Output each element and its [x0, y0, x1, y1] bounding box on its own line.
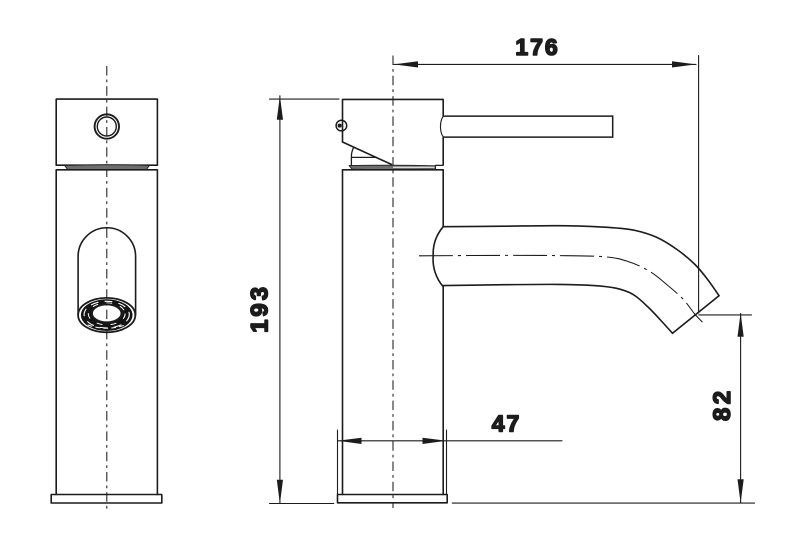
svg-text:82: 82	[709, 387, 736, 421]
svg-text:176: 176	[515, 34, 559, 60]
svg-text:47: 47	[492, 411, 522, 437]
svg-text:193: 193	[247, 284, 274, 333]
